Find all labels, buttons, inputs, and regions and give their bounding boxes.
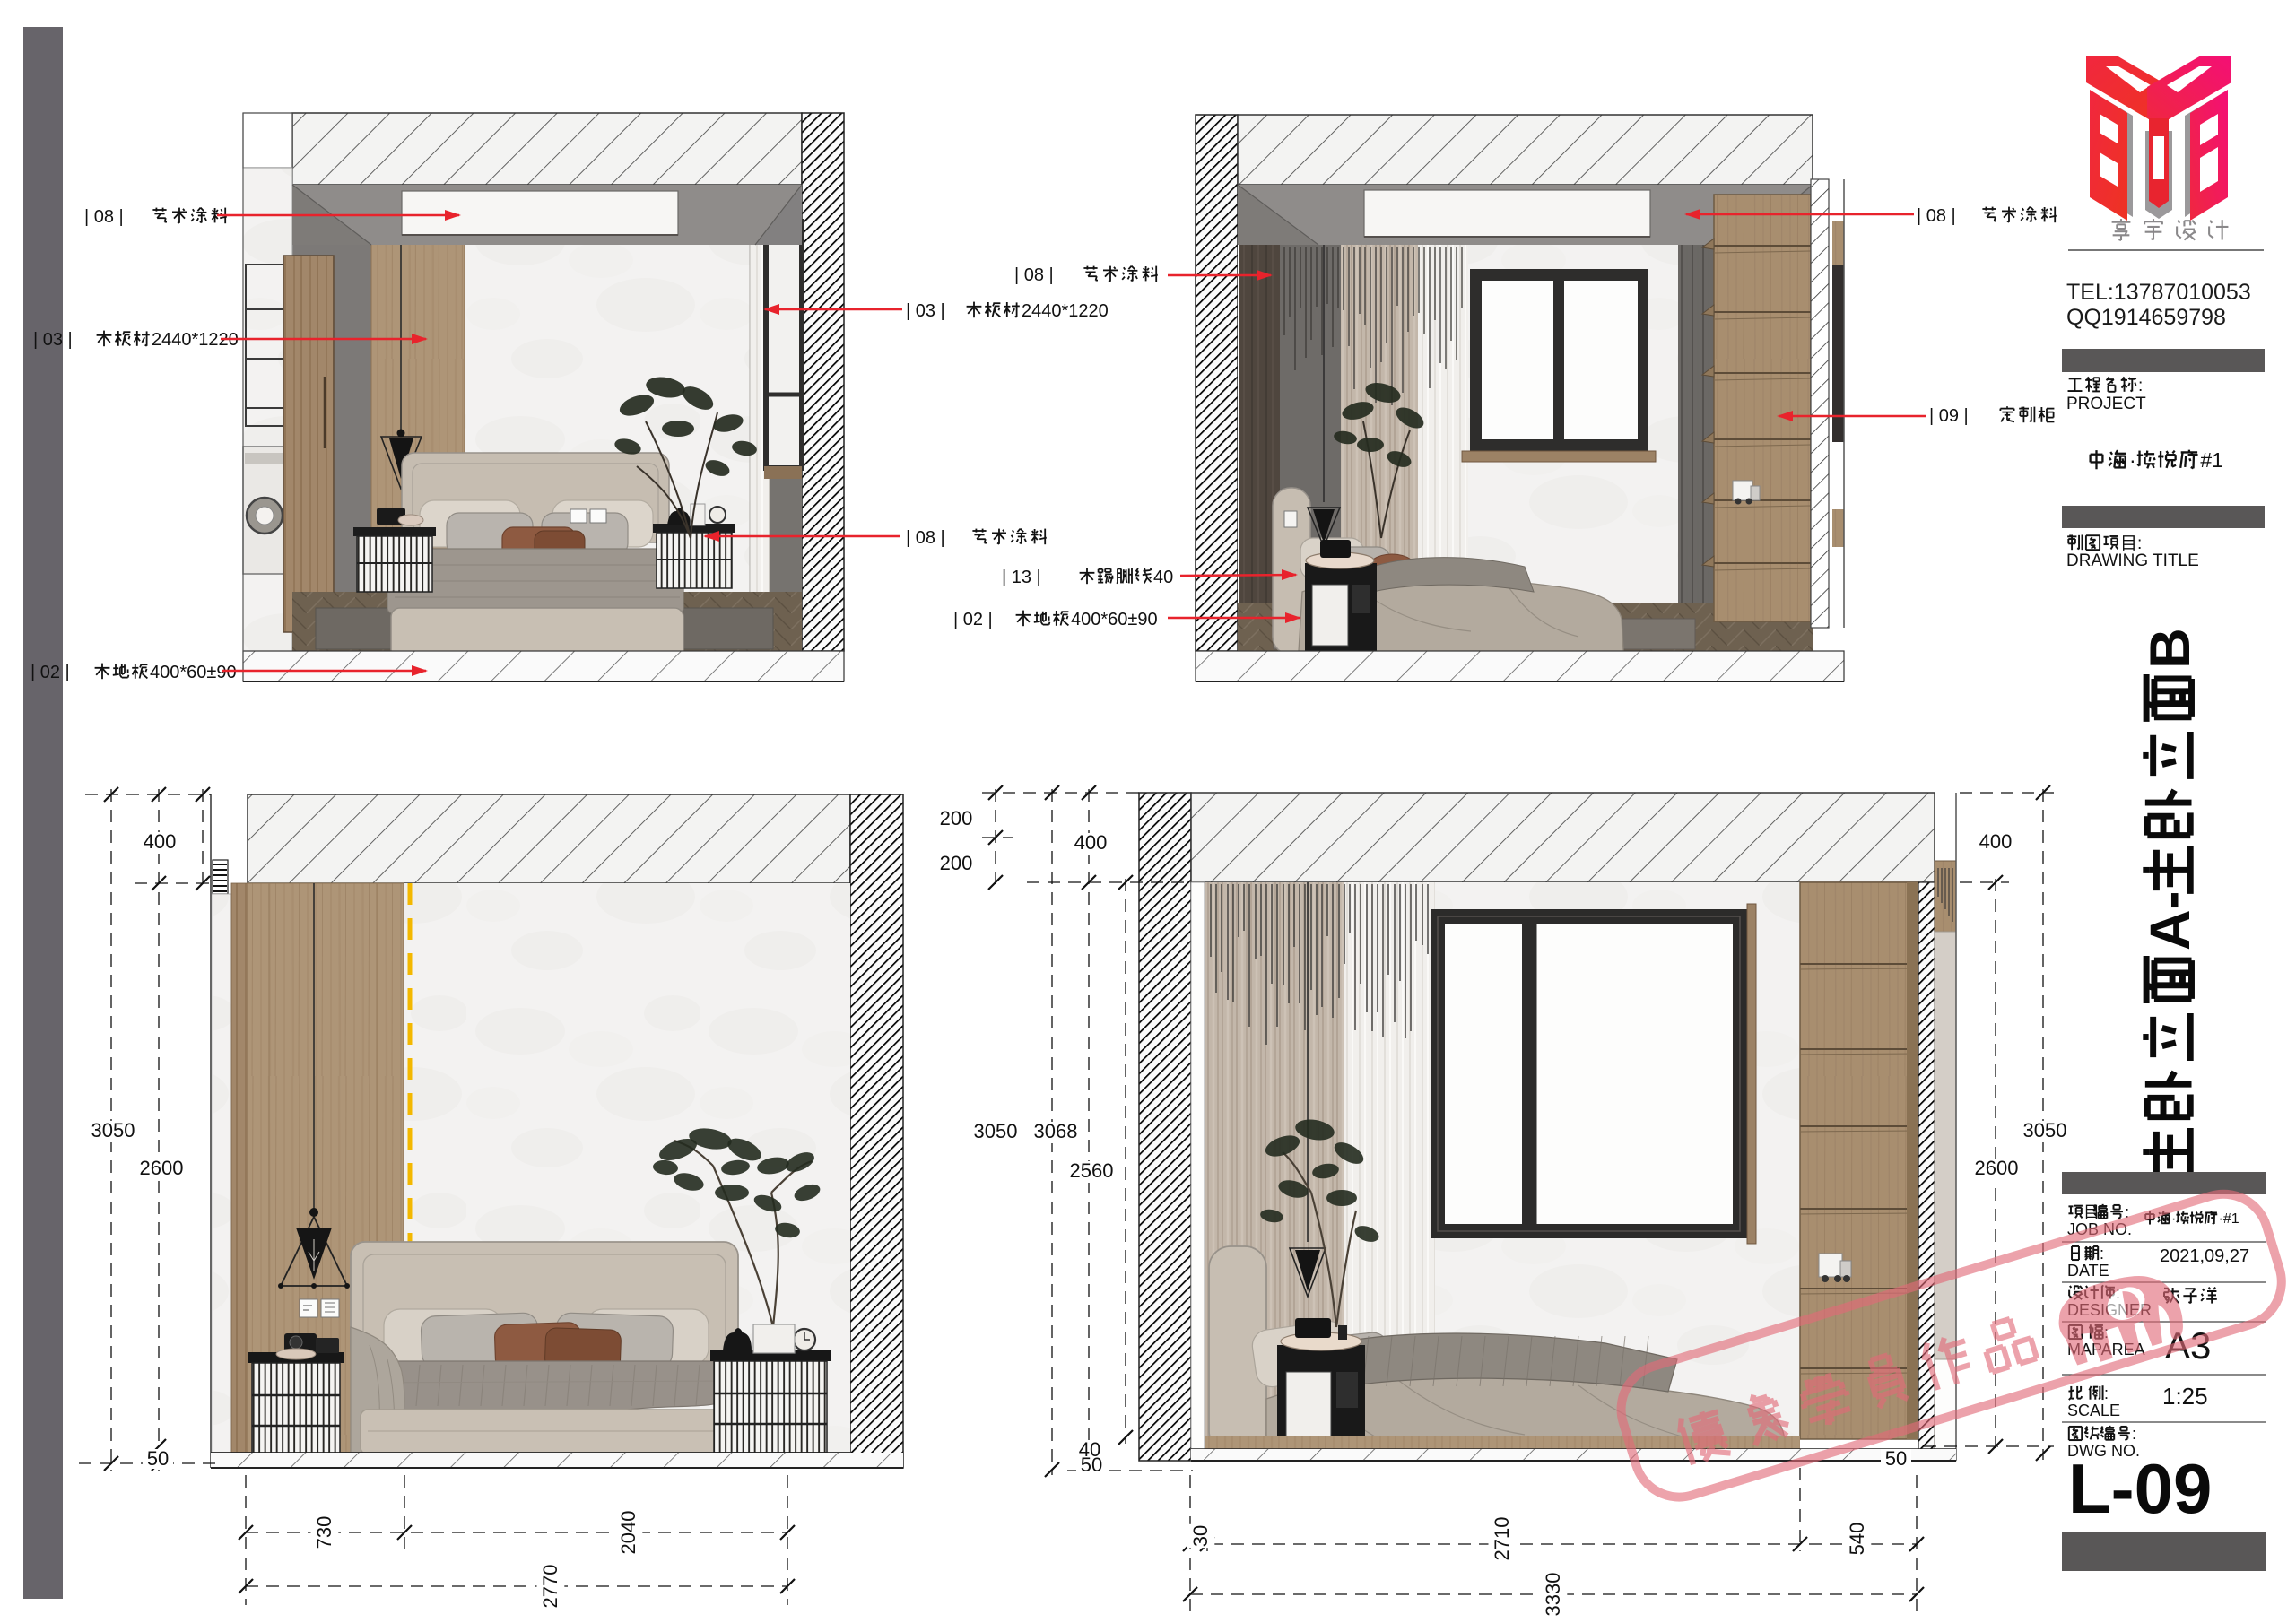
- svg-text:400*60±90: 400*60±90: [1071, 610, 1158, 629]
- svg-text:B: B: [2139, 628, 2202, 669]
- svg-text:| 02 |: | 02 |: [953, 610, 993, 629]
- svg-text:DATE: DATE: [2067, 1262, 2109, 1280]
- svg-text:1:25: 1:25: [2162, 1383, 2208, 1410]
- svg-text:730: 730: [313, 1516, 335, 1549]
- svg-text:A-: A-: [2139, 891, 2202, 950]
- svg-text:| 08 |: | 08 |: [84, 207, 124, 227]
- svg-text:SCALE: SCALE: [2067, 1402, 2120, 1419]
- svg-text::: :: [2132, 1425, 2136, 1443]
- svg-text:50: 50: [1081, 1454, 1102, 1476]
- svg-text:·: ·: [2129, 448, 2136, 472]
- svg-text:2600: 2600: [140, 1157, 184, 1179]
- svg-text:2600: 2600: [1975, 1157, 2019, 1179]
- svg-text:| 08 |: | 08 |: [1014, 265, 1054, 285]
- svg-text::: :: [2138, 377, 2143, 395]
- svg-text:400: 400: [143, 830, 177, 853]
- svg-text:3050: 3050: [91, 1119, 135, 1141]
- svg-text:40: 40: [1153, 568, 1173, 587]
- svg-text:3050: 3050: [2023, 1119, 2067, 1141]
- svg-text:| 08 |: | 08 |: [906, 528, 945, 548]
- svg-text:| 08 |: | 08 |: [1917, 206, 1956, 226]
- svg-text:| 02 |: | 02 |: [30, 663, 70, 682]
- svg-text:PROJECT: PROJECT: [2066, 395, 2146, 413]
- svg-text:50: 50: [1885, 1447, 1907, 1470]
- svg-text:2440*1220: 2440*1220: [1022, 301, 1109, 321]
- svg-text:TEL:13787010053: TEL:13787010053: [2066, 280, 2251, 305]
- svg-text:30: 30: [1189, 1525, 1212, 1547]
- svg-text:2560: 2560: [1070, 1159, 1114, 1182]
- svg-text:| 03 |: | 03 |: [906, 301, 945, 321]
- svg-text:2710: 2710: [1491, 1517, 1513, 1561]
- svg-text:QQ1914659798: QQ1914659798: [2066, 305, 2226, 330]
- svg-text:540: 540: [1846, 1523, 1868, 1556]
- svg-text:L-09: L-09: [2068, 1449, 2212, 1528]
- svg-text:50: 50: [147, 1447, 169, 1470]
- svg-text:·: ·: [2171, 1211, 2176, 1227]
- svg-text:200: 200: [940, 807, 973, 829]
- svg-text:3330: 3330: [1542, 1573, 1564, 1617]
- svg-text:400*60±90: 400*60±90: [150, 663, 237, 682]
- svg-text:| 13 |: | 13 |: [1002, 568, 1041, 587]
- svg-text:400: 400: [1074, 831, 1108, 854]
- svg-text:| 03 |: | 03 |: [33, 330, 73, 350]
- svg-text:400: 400: [1979, 830, 2013, 853]
- svg-text:200: 200: [940, 852, 973, 874]
- svg-text:| 09 |: | 09 |: [1929, 406, 1969, 426]
- svg-text:3068: 3068: [1034, 1120, 1078, 1142]
- svg-text::: :: [2104, 1384, 2109, 1402]
- svg-text:#1: #1: [2200, 448, 2223, 472]
- svg-text:目:: 目:: [2120, 534, 2142, 553]
- svg-text:·#1: ·#1: [2219, 1211, 2239, 1227]
- svg-text:2040: 2040: [617, 1511, 639, 1555]
- svg-text:DRAWING TITLE: DRAWING TITLE: [2066, 551, 2199, 570]
- svg-text:2021,09,27: 2021,09,27: [2160, 1246, 2249, 1266]
- svg-text::: :: [2100, 1245, 2104, 1263]
- svg-text:2770: 2770: [539, 1565, 561, 1609]
- svg-text:目: 目: [2083, 1203, 2100, 1221]
- svg-text:3050: 3050: [974, 1120, 1018, 1142]
